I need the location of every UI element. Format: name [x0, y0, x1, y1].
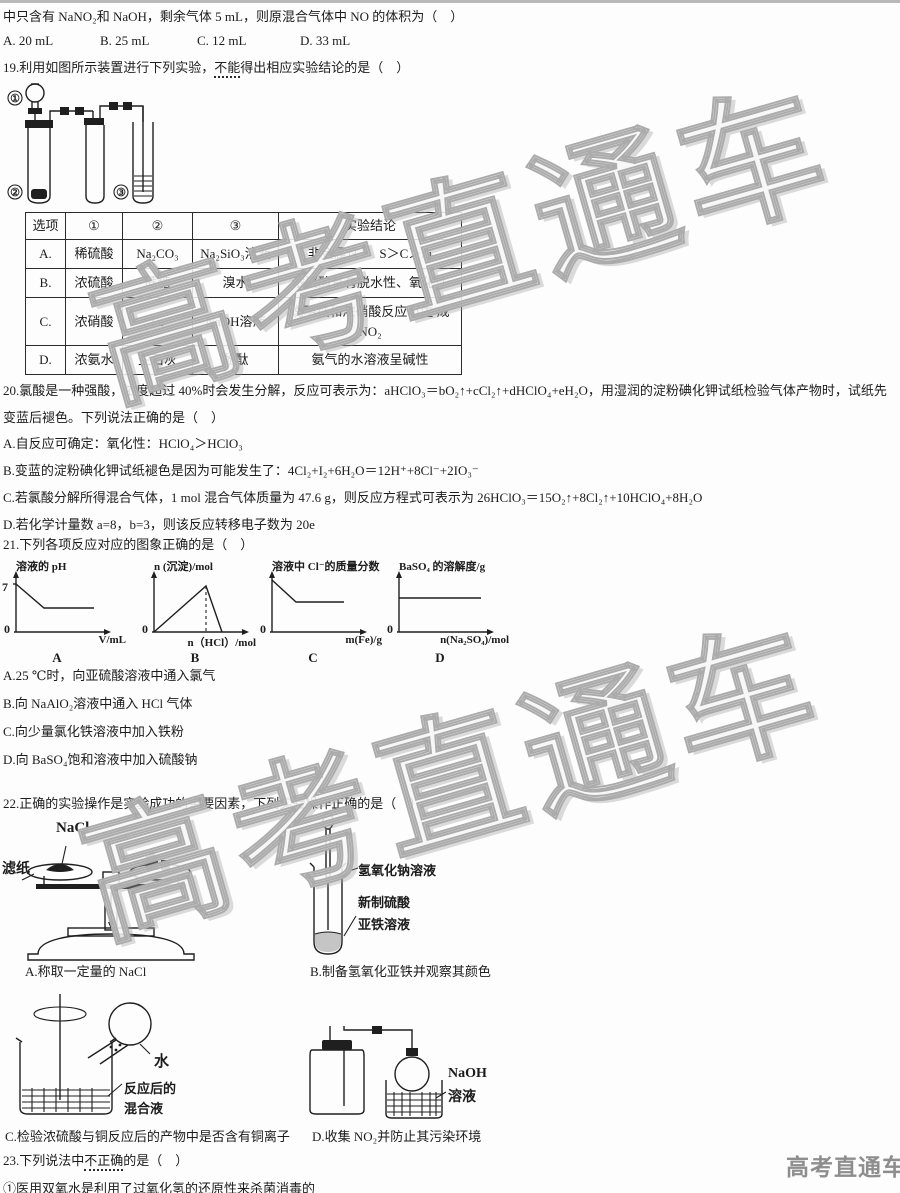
q22-caption-a: A.称取一定量的 NaCl [25, 961, 146, 980]
table-row: C. 浓硝酸 Fe NaOH溶液 说明铁和浓硝酸反应可生 成 NO₂ [26, 298, 462, 346]
q23-stem-prefix: 23.下列说法中 [3, 1153, 84, 1168]
q21-options: A.25 ℃时，向亚硫酸溶液中通入氯气 B.向 NaAlO₂溶液中通入 HCl … [3, 662, 215, 774]
q18-options-row: A. 20 mL B. 25 mL C. 12 mL D. 33 mL [0, 33, 420, 53]
q23-stem: 23.下列说法中不正确的是（ ） [3, 1150, 188, 1169]
cell-opt: A. [26, 240, 66, 269]
q20-option-b: B.变蓝的淀粉碘化钾试纸褪色是因为可能发生了：4Cl₂+I₂+6H₂O＝12H⁺… [3, 457, 702, 484]
q18-option-a: A. 20 mL [3, 33, 53, 49]
q20-option-a: A.自反应可确定：氧化性：HClO₄＞HClO₃ [3, 430, 702, 457]
cell-1: 稀硫酸 [66, 240, 123, 269]
q22-caption-b: B.制备氢氧化亚铁并观察其颜色 [310, 961, 491, 980]
table-row: B. 浓硫酸 蔗糖 溴水 浓硫酸具有脱水性、氧化性 [26, 269, 462, 298]
q21-graph-D: BaSO₄ 的溶解度/g 0 n(Na₂SO₄)/mol D [385, 558, 515, 658]
cell-conclusion: 氨气的水溶液呈碱性 [279, 346, 462, 375]
dropper-icon [323, 813, 333, 930]
q19-stem-prefix: 19.利用如图所示装置进行下列实验， [3, 60, 214, 75]
apparatus-drawing: ① ② ③ [5, 80, 180, 208]
q22-collect-figure: NaOH 溶液 [300, 1022, 540, 1122]
feso4-pointer [344, 916, 356, 936]
naoh-pointer [346, 868, 358, 872]
graph-a-plot [2, 570, 122, 636]
water-label: 水 [154, 1050, 169, 1071]
flask-icon [88, 1003, 151, 1064]
label-1: ① [10, 93, 20, 105]
col-header-2: ② [123, 213, 193, 240]
dropping-funnel-icon [26, 84, 44, 122]
graph-d-xlabel: n(Na₂SO₄)/mol [440, 634, 509, 646]
graph-c-xlabel: m(Fe)/g [345, 634, 382, 646]
graph-c-caption: C [258, 650, 368, 666]
cell-opt: B. [26, 269, 66, 298]
col-header-conclusion: 实验结论 [279, 213, 462, 240]
gas-tube-2-icon [100, 102, 143, 122]
q19-stem: 19.利用如图所示装置进行下列实验，不能得出相应实验结论的是（ ） [3, 57, 409, 76]
cell-3: Na₂SiO₃溶液 [193, 240, 279, 269]
feso4-label-line2: 亚铁溶液 [358, 914, 410, 933]
q21-option-c: C.向少量氯化铁溶液中加入铁粉 [3, 718, 215, 746]
q21-option-b: B.向 NaAlO₂溶液中通入 HCl 气体 [3, 690, 215, 718]
q22-caption-c: C.检验浓硫酸与铜反应后的产物中是否含有铜离子 [5, 1126, 290, 1145]
graph-b-plot [140, 570, 260, 636]
q23-item-1: ①医用双氧水是利用了过氧化氢的还原性来杀菌消毒的 [3, 1178, 315, 1193]
naoh-solution-label: 氢氧化钠溶液 [358, 860, 436, 879]
q20-options: A.自反应可确定：氧化性：HClO₄＞HClO₃ B.变蓝的淀粉碘化钾试纸褪色是… [3, 430, 702, 538]
test-tube-1-icon [25, 120, 53, 203]
graph-c-plot [258, 570, 378, 636]
q18-option-c: C. 12 mL [197, 33, 246, 49]
balance-drawing [8, 832, 218, 962]
cell-2: 蔗糖 [123, 269, 193, 298]
inverted-flask-icon [395, 1048, 429, 1091]
naoh-label-line2: 溶液 [448, 1086, 476, 1106]
table-row: A. 稀硫酸 Na₂CO₃ Na₂SiO₃溶液 非金属性： S＞C＞Si [26, 240, 462, 269]
tube-drawing [300, 812, 440, 962]
cell-2: Fe [123, 298, 193, 346]
scan-edge-artifact [0, 0, 900, 3]
graph-b-xlabel: n（HCl）/mol [188, 634, 256, 650]
test-tube-2-icon [84, 118, 104, 203]
q19-stem-emphasis: 不能 [214, 60, 240, 78]
graph-a-xlabel: V/mL [99, 634, 127, 646]
q22-beaker-figure: 水 反应后的 混合液 [12, 992, 242, 1122]
label-3: ③ [116, 187, 126, 199]
cell-conclusion: 非金属性： S＞C＞Si [279, 240, 462, 269]
cell-1: 浓氨水 [66, 346, 123, 375]
q18-option-d: D. 33 mL [300, 33, 350, 49]
q19-apparatus-figure: ① ② ③ [5, 80, 180, 208]
cell-opt: D. [26, 346, 66, 375]
cell-3: 溴水 [193, 269, 279, 298]
label-2: ② [10, 187, 20, 199]
naoh-hatch [387, 1092, 441, 1116]
mixture-label-line2: 混合液 [124, 1098, 163, 1117]
q23-stem-suffix: 的是（ ） [123, 1153, 188, 1168]
q22-stem: 22.正确的实验操作是实验成功的重要因素，下列实验操作正确的是（ ） [3, 793, 422, 812]
q18-tail-text: 中只含有 NaNO₂和 NaOH，剩余气体 5 mL，则原混合气体中 NO 的体… [3, 6, 463, 25]
q18-option-b: B. 25 mL [100, 33, 149, 49]
graph-d-plot [385, 570, 505, 636]
cell-3: NaOH溶液 [193, 298, 279, 346]
q21-option-d: D.向 BaSO₄饱和溶液中加入硫酸钠 [3, 746, 215, 774]
collection-tube-icon [133, 106, 153, 203]
collect-drawing [300, 1022, 450, 1120]
cell-2: Na₂CO₃ [123, 240, 193, 269]
cell-2: 生石灰 [123, 346, 193, 375]
q19-stem-suffix: 得出相应实验结论的是（ ） [240, 60, 409, 75]
cell-3: 酚酞 [193, 346, 279, 375]
q21-graph-B: n (沉淀)/mol 0 n（HCl）/mol B [140, 558, 270, 658]
q22-tube-figure: 氢氧化钠溶液 新制硫酸 亚铁溶液 [300, 812, 500, 962]
exam-page: 中只含有 NaNO₂和 NaOH，剩余气体 5 mL，则原混合气体中 NO 的体… [0, 0, 900, 1193]
q22-balance-figure: NaCl 滤纸 [8, 814, 228, 964]
connector-tube-icon [344, 1026, 412, 1048]
naoh-pointer [436, 1092, 446, 1098]
water-pointer [140, 1044, 150, 1054]
balance-pillar [105, 888, 117, 930]
col-header-3: ③ [193, 213, 279, 240]
cell-opt: C. [26, 298, 66, 346]
filter-paper-pointer [22, 874, 34, 880]
gas-bottle-icon [310, 1026, 364, 1114]
table-header-row: 选项 ① ② ③ 实验结论 [26, 213, 462, 240]
q21-stem: 21.下列各项反应对应的图象正确的是（ ） [3, 534, 253, 553]
q22-caption-d: D.收集 NO₂并防止其污染环境 [312, 1126, 481, 1145]
q20-stem: 20.氯酸是一种强酸，浓度超过 40%时会发生分解，反应可表示为：aHClO₃＝… [3, 377, 898, 431]
feso4-label-line1: 新制硫酸 [358, 892, 410, 911]
brand-footer-text: 高考直通车 [786, 1148, 900, 1182]
graph-d-caption: D [385, 650, 495, 666]
table-row: D. 浓氨水 生石灰 酚酞 氨气的水溶液呈碱性 [26, 346, 462, 375]
left-pan [28, 846, 92, 886]
cell-conclusion: 浓硫酸具有脱水性、氧化性 [279, 269, 462, 298]
q21-option-a: A.25 ℃时，向亚硫酸溶液中通入氯气 [3, 662, 215, 690]
balance-base [28, 928, 194, 960]
mixture-hatch [22, 1088, 110, 1112]
cell-1: 浓硝酸 [66, 298, 123, 346]
naoh-beaker-icon [386, 1080, 442, 1118]
q21-graph-C: 溶液中 Cl⁻的质量分数 0 m(Fe)/g C [258, 558, 388, 658]
cell-1: 浓硫酸 [66, 269, 123, 298]
mixture-pointer [108, 1084, 122, 1096]
q19-conclusion-table: 选项 ① ② ③ 实验结论 A. 稀硫酸 Na₂CO₃ Na₂SiO₃溶液 非金… [25, 212, 462, 375]
right-pan [130, 852, 190, 886]
col-header-1: ① [66, 213, 123, 240]
naoh-label-line1: NaOH [448, 1066, 487, 1082]
col-header-option: 选项 [26, 213, 66, 240]
q21-graph-A: 溶液的 pH 7 0 V/mL A [2, 558, 132, 658]
q20-option-c: C.若氯酸分解所得混合气体，1 mol 混合气体质量为 47.6 g，则反应方程… [3, 484, 702, 511]
stirring-rod-icon [34, 994, 86, 1100]
mixture-label-line1: 反应后的 [124, 1078, 176, 1097]
cell-conclusion: 说明铁和浓硝酸反应可生 成 NO₂ [279, 298, 462, 346]
q23-stem-emphasis: 不正确 [84, 1153, 123, 1171]
